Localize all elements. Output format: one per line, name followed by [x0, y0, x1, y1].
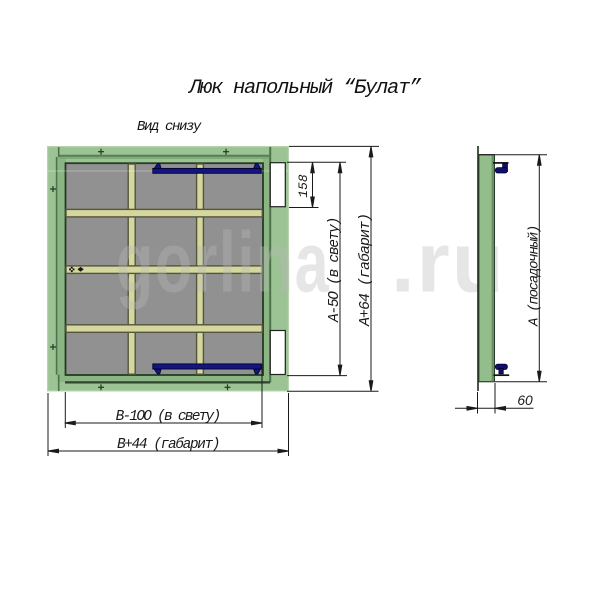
svg-text:А+64 (габарит): А+64 (габарит) [357, 214, 374, 327]
svg-text:gorlina: gorlina [116, 215, 330, 310]
svg-text:А-5О (в свету): А-5О (в свету) [327, 218, 343, 323]
svg-text:60: 60 [517, 393, 533, 408]
svg-text:А (посадочный): А (посадочный) [526, 226, 543, 327]
svg-text:Люк напольный “Булат”: Люк напольный “Булат” [187, 77, 422, 100]
svg-text:Вид снизу: Вид снизу [137, 119, 202, 135]
svg-text:В+44 (габарит): В+44 (габарит) [117, 436, 219, 453]
svg-text:В-1ОО (в свету): В-1ОО (в свету) [116, 409, 220, 425]
svg-text:158: 158 [296, 174, 311, 198]
